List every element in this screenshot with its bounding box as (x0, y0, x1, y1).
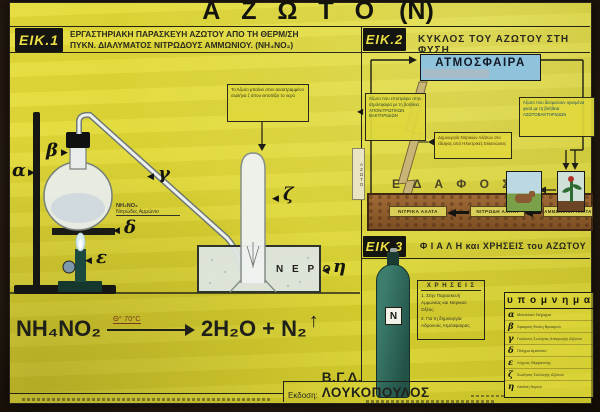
plant-flower (568, 176, 574, 182)
arrow-shaft (107, 329, 187, 331)
atmosphere-box: ΑΤΜΟΣΦΑΙΡΑ (420, 54, 541, 81)
legend-item: γΓυάλινος Σωλήνας Απαγωγής Αζώτου (505, 333, 593, 345)
page-title: Α Ζ Ω Τ Ο (202, 0, 381, 26)
arrow-left-icon: ◀ (113, 226, 120, 235)
poster-title-row: Α Ζ Ω Τ Ο (Ν) (168, 0, 468, 26)
page-title-symbol: (Ν) (399, 0, 434, 26)
arrow-right-icon: ▶ (28, 168, 35, 177)
legend-text: Σωλήνας Συλλογής Αζώτου (517, 373, 564, 377)
legend-letter: α (508, 310, 517, 320)
edition-name: Β.Γ.Δ. ΛΟΥΚΟΠΟΥΛΟΣ (322, 370, 468, 400)
fig2-right-note: Άζωτο που δεσμεύουν ορισμένα φυτά με τη … (519, 97, 595, 137)
poster-photo: Α Ζ Ω Τ Ο (Ν) ΕΙΚ.1 ΕΡΓΑΣΤΗΡΙΑΚΗ ΠΑΡΑΣΚΕ… (0, 0, 600, 412)
arrow-left-icon: ◀ (272, 194, 279, 203)
legend-item: δΠλέγμα Αμιάντου (505, 345, 593, 357)
label-beta: β (46, 140, 58, 161)
edition-strip: Εκδοση: Β.Γ.Δ. ΛΟΥΚΟΠΟΥΛΟΣ (283, 381, 504, 402)
fig1-title-line1: ΕΡΓΑΣΤΗΡΙΑΚΗ ΠΑΡΑΣΚΕΥΗ ΑΖΩΤΟΥ ΑΠΟ ΤΗ ΘΕΡ… (70, 29, 362, 40)
flask-name: Νιτρώδες Αμμώνιο (116, 209, 180, 216)
legend-letter: ζ (508, 370, 517, 380)
fig1-fine-print (22, 398, 272, 401)
salt-box-nitrate: ΝΙΤΡΙΚΑ ΑΛΑΤΑ (389, 206, 447, 217)
animals-picture (506, 171, 542, 212)
legend-letter: δ (508, 346, 517, 356)
fig2-left-note: Άζωτο που επιστρέφει στην ατμόσφαιρα με … (365, 93, 426, 141)
label-gamma: γ (158, 163, 170, 184)
fig1-tag: ΕΙΚ.1 (15, 28, 63, 52)
arrow-left-icon (455, 211, 469, 214)
label-eta: η (333, 256, 346, 277)
legend-text: Πλέγμα Αμιάντου (517, 349, 546, 353)
fig3-title: Φ Ι Α Λ Η και ΧΡΗΣΕΙΣ του ΑΖΩΤΟΥ (412, 241, 594, 251)
legend-text: Λεκάνη Νερού (517, 385, 542, 389)
uses-item-2: 2. Για τη δημιουργία Αδρανούς Ατμόσφαιρα… (421, 316, 481, 330)
label-epsilon: ε (96, 247, 107, 268)
legend-title: υ π ο μ ν η μ α (505, 293, 593, 309)
uses-box: Χ Ρ Η Σ Ε Ι Σ 1. Στην Παρασκευή Αμμωνίας… (417, 280, 485, 340)
arrow-right-icon: ▶ (61, 148, 68, 157)
uses-item-1: 1. Στην Παρασκευή Αμμωνίας και Νιτρικού … (421, 293, 481, 314)
plant-leaf (572, 183, 583, 191)
column-divider (361, 26, 362, 382)
arrow-left-icon: ◀ (85, 256, 92, 265)
legend-item: εΛύχνος Θέρμανσης (505, 357, 593, 369)
legend-text: Γυάλινος Σωλήνας Απαγωγής Αζώτου (517, 337, 582, 341)
gas-up-arrow: ↑ (309, 310, 319, 333)
equation-reactant: NH₄NO₂ (16, 316, 101, 342)
fig2-middle-note: Δημιουργία Νιτρικών Αλάτων στο έδαφος απ… (434, 132, 512, 159)
fig3-tag: ΕΙΚ.3 (363, 236, 406, 257)
rule-left-bottom (9, 393, 283, 394)
uses-title: Χ Ρ Η Σ Ε Ι Σ (421, 283, 481, 291)
legend-letter: ε (508, 358, 517, 368)
cloud-band (423, 69, 489, 78)
arrow-left-icon: ◀ (147, 172, 154, 181)
equation-products: 2H₂O + N₂ (201, 316, 307, 342)
legend-item: ζΣωλήνας Συλλογής Αζώτου (505, 369, 593, 381)
legend-letter: η (508, 382, 517, 392)
legend-box: υ π ο μ ν η μ α αΜεταλλικό Στήριγμα βΣφα… (504, 292, 594, 398)
flask-content-note: ΝΗ₄ΝΟ₂ Νιτρώδες Αμμώνιο (116, 203, 180, 216)
fig2-tag: ΕΙΚ.2 (363, 28, 406, 51)
legend-item: βΣφαιρική Φιάλη Βρασμού (505, 321, 593, 333)
reaction-arrow: Θ° 70°C (105, 314, 197, 344)
equation-condition: Θ° 70°C (113, 314, 141, 324)
legend-letter: β (508, 322, 517, 332)
legend-letter: γ (508, 334, 517, 344)
cow-head (529, 191, 535, 197)
edition-label: Εκδοση: (288, 391, 318, 400)
fig2-title: ΚΥΚΛΟΣ ΤΟΥ ΑΖΩΤΟΥ ΣΤΗ ΦΥΣΗ (418, 34, 600, 56)
arrow-head-icon (185, 324, 195, 336)
cylinder-label: N (385, 307, 402, 325)
label-alpha: α (12, 160, 26, 181)
fig1-title: ΕΡΓΑΣΤΗΡΙΑΚΗ ΠΑΡΑΣΚΕΥΗ ΑΖΩΤΟΥ ΑΠΟ ΤΗ ΘΕΡ… (70, 29, 362, 53)
legend-item: ηΛεκάνη Νερού (505, 381, 593, 393)
plant-picture (557, 171, 585, 212)
legend-text: Μεταλλικό Στήριγμα (517, 313, 551, 317)
legend-text: Σφαιρική Φιάλη Βρασμού (517, 325, 561, 329)
legend-item: αΜεταλλικό Στήριγμα (505, 309, 593, 321)
label-zeta: ζ (283, 184, 294, 205)
fig1-note-box: Το Άζωτο μπαίνει στον αναστραμμένο σωλήν… (227, 84, 309, 122)
side-label-nitrogen: ΑΖΩΤΟ (352, 148, 365, 200)
arrow-left-icon: ◀ (357, 108, 363, 116)
chemical-equation: NH₄NO₂ Θ° 70°C 2H₂O + N₂ ↑ (16, 314, 361, 344)
legend-text: Λύχνος Θέρμανσης (517, 361, 551, 365)
fig1-title-line2: ΠΥΚΝ. ΔΙΑΛΥΜΑΤΟΣ ΝΙΤΡΩΔΟΥΣ ΑΜΜΩΝΙΟΥ. (ΝΗ… (70, 40, 362, 53)
edition-fine-print (471, 395, 504, 398)
label-delta: δ (124, 217, 136, 238)
rule-under-title (9, 26, 590, 27)
water-label: Ν Ε Ρ Ο (276, 264, 334, 275)
atmosphere-label: ΑΤΜΟΣΦΑΙΡΑ (421, 57, 540, 69)
soil-label: Ε Δ Α Φ Ο Σ (392, 177, 514, 191)
